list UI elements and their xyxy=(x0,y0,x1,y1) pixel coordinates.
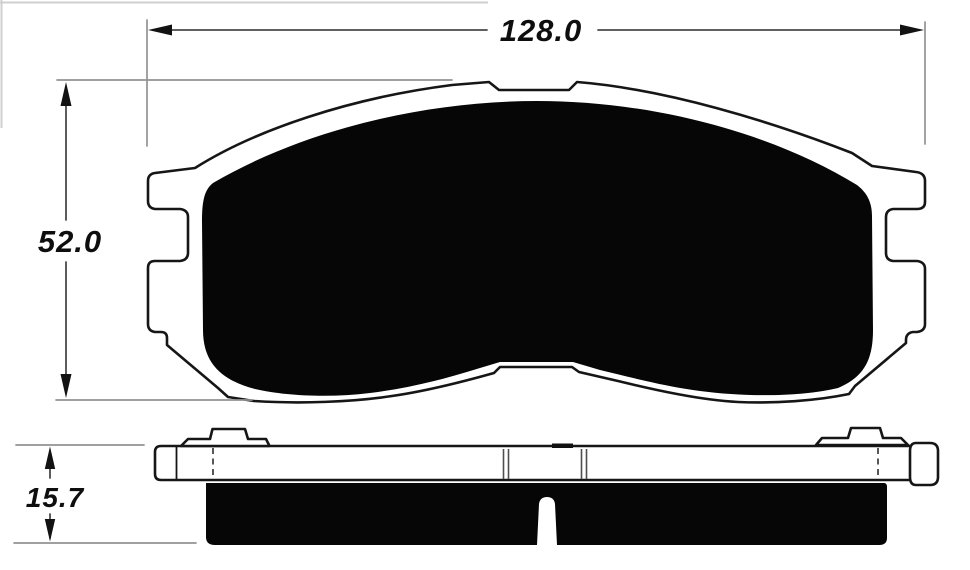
brake-pad-drawing: 128.0 52.0 15.7 xyxy=(0,0,970,570)
width-dimension-label: 128.0 xyxy=(500,13,583,48)
height-dimension-label: 52.0 xyxy=(38,224,102,259)
side-view-right-endcap xyxy=(910,443,938,485)
plate-slot-top-mark xyxy=(552,444,573,449)
technical-drawing-canvas: 128.0 52.0 15.7 xyxy=(0,0,970,570)
side-view-backing-plate xyxy=(155,446,913,480)
thickness-dimension-label: 15.7 xyxy=(26,482,85,513)
front-view-friction-material xyxy=(202,101,873,396)
